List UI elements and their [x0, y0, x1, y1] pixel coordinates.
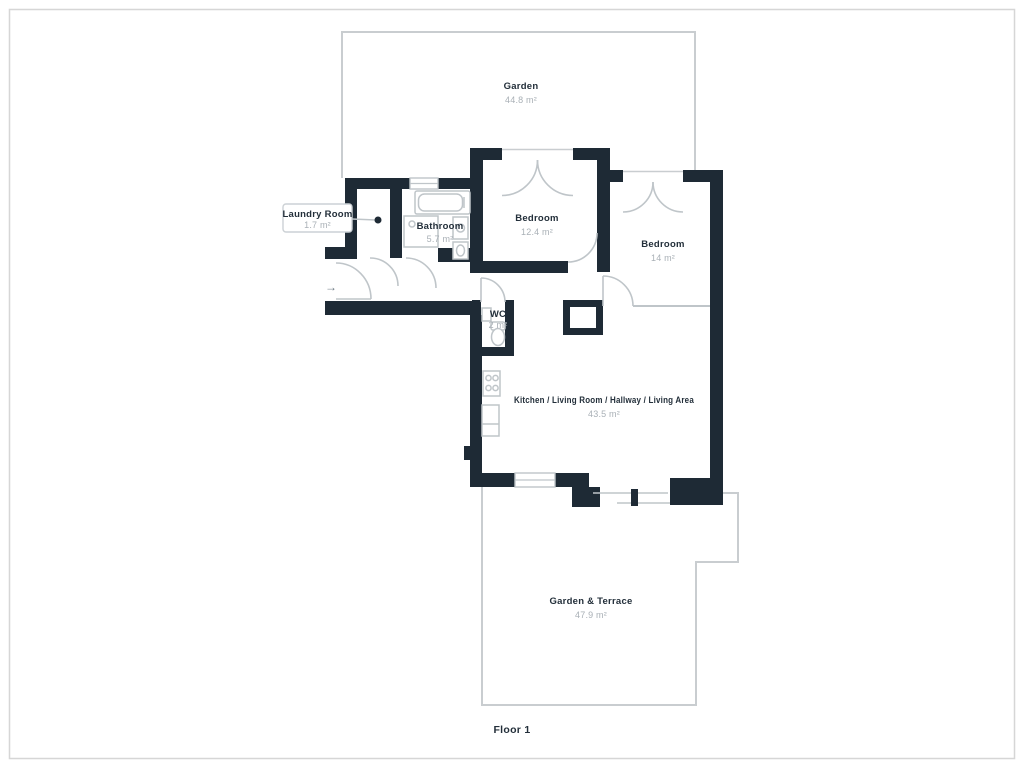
bedroom1-name: Bedroom	[515, 213, 558, 224]
wall	[470, 148, 502, 160]
bedroom2-name: Bedroom	[641, 239, 684, 250]
wall	[470, 148, 483, 261]
laundry-leader-line	[352, 219, 376, 220]
stove-icon	[483, 371, 500, 396]
floorplan-svg: → Garden 44.8 m² Laundry Room 1.7 m² Bat…	[0, 0, 1024, 768]
floorplan-page: → Garden 44.8 m² Laundry Room 1.7 m² Bat…	[0, 0, 1024, 768]
page-frame	[10, 10, 1015, 759]
wall	[470, 473, 515, 487]
terrace-area: 47.9 m²	[575, 610, 607, 620]
wall	[683, 170, 710, 182]
wall	[438, 178, 472, 189]
entrance-arrow-icon: →	[325, 280, 337, 294]
french-door-left-arc	[623, 182, 653, 212]
wall	[572, 487, 600, 507]
bathtub-inner	[419, 194, 463, 211]
bathroom-name: Bathroom	[417, 221, 464, 232]
sliding-door	[593, 489, 670, 506]
bedroom2-area: 14 m²	[651, 253, 675, 263]
wc-toilet-bowl	[492, 329, 505, 346]
living-name: Kitchen / Living Room / Hallway / Living…	[514, 395, 694, 406]
wc-name: WC	[490, 309, 506, 320]
kitchen-sink-icon	[482, 405, 499, 436]
garden-area: 44.8 m²	[505, 95, 537, 105]
bedroom2-door-arc	[603, 276, 633, 306]
wall	[610, 170, 623, 182]
toilet-bowl	[457, 245, 465, 256]
closet-block	[567, 304, 600, 332]
terrace-name: Garden & Terrace	[549, 596, 632, 607]
wall-wc	[472, 347, 514, 356]
floor-label: Floor 1	[493, 724, 530, 736]
wall	[597, 148, 610, 272]
french-door-right-arc	[538, 160, 574, 196]
french-door-left-arc	[502, 160, 538, 196]
bedroom1-door-arc	[568, 233, 597, 262]
french-door-right-arc	[653, 182, 683, 212]
bathroom-door-arc	[406, 258, 436, 288]
wall	[470, 261, 568, 273]
sliding-door-handle	[631, 489, 638, 506]
bathroom-area: 5.7 m²	[427, 234, 454, 244]
shower-drain	[409, 221, 415, 227]
garden-outline	[342, 32, 695, 178]
laundry-name: Laundry Room	[282, 209, 352, 220]
wall	[325, 301, 472, 315]
entrance-door-arc	[336, 263, 371, 299]
wall	[390, 186, 402, 258]
wall	[464, 446, 470, 460]
bedroom1-area: 12.4 m²	[521, 227, 553, 237]
stove-burner	[493, 375, 498, 380]
stove-burner	[493, 385, 498, 390]
laundry-door-arc	[370, 258, 398, 286]
wall	[670, 478, 723, 505]
laundry-leader-dot	[375, 217, 382, 224]
wall	[325, 247, 345, 259]
wall	[555, 473, 589, 487]
garden-name: Garden	[504, 81, 539, 92]
wall	[710, 170, 723, 505]
wc-door-arc	[481, 278, 505, 302]
stove-burner	[486, 375, 491, 380]
walls	[325, 148, 723, 507]
wc-area: 2 m²	[489, 320, 508, 330]
laundry-area: 1.7 m²	[304, 220, 331, 230]
living-area: 43.5 m²	[588, 409, 620, 419]
stove-burner	[486, 385, 491, 390]
